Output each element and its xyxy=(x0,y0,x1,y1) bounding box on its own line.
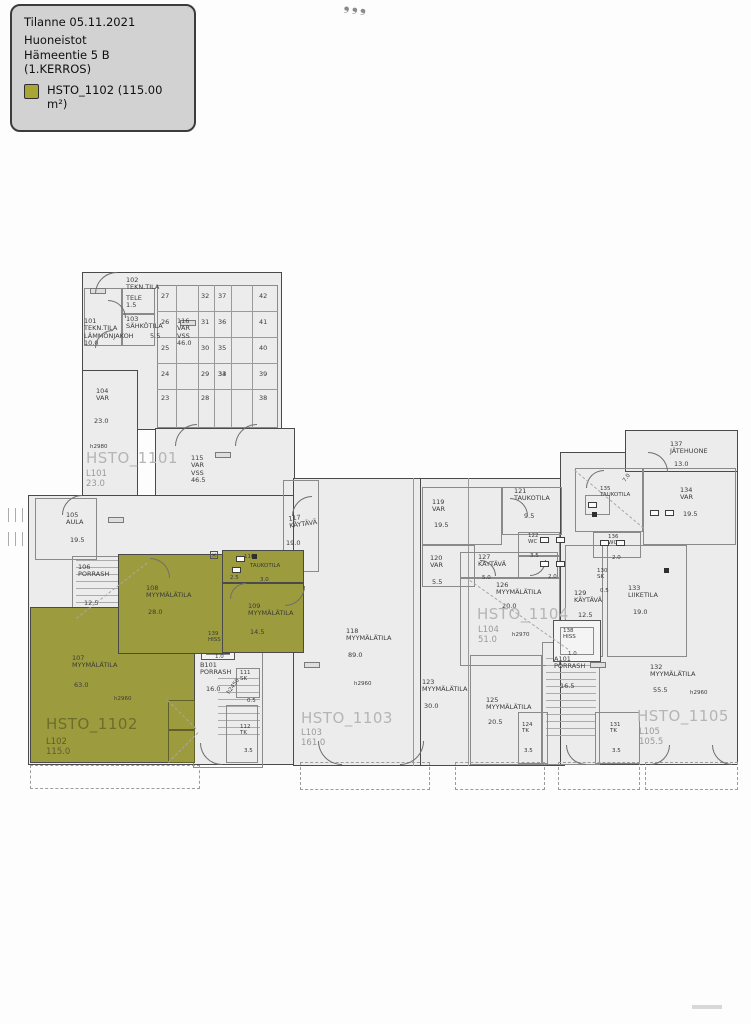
room-label: 1.0 xyxy=(568,651,577,657)
room-label: 115 VAR VSS 46.5 xyxy=(191,455,205,484)
bound-118-123 xyxy=(413,478,414,766)
room-label: 27 xyxy=(161,293,169,300)
room-label: 137 JÄTEHUONE xyxy=(670,441,708,456)
room-label: A101 PORRASH xyxy=(554,656,585,671)
room-label: 116 VAR VSS 46.0 xyxy=(177,318,191,347)
room-label: 31 xyxy=(201,319,209,326)
room-label: TELE 1.5 xyxy=(126,295,142,310)
room-label: 19.0 xyxy=(633,609,647,616)
room-label: 123 MYYMÄLÄTILA xyxy=(422,679,467,694)
canopy xyxy=(300,762,430,790)
ramp-left xyxy=(8,532,28,546)
room-119 xyxy=(422,487,502,545)
gline xyxy=(157,337,278,338)
room-label: 19.5 xyxy=(434,522,448,529)
room-label: 25 xyxy=(161,345,169,352)
room-label: 35 xyxy=(218,345,226,352)
room-134 xyxy=(643,468,736,545)
wc-fixture-icon xyxy=(540,537,549,543)
room-label: 19.5 xyxy=(683,511,697,518)
room-label: 20.5 xyxy=(488,719,502,726)
room-label: 126 MYYMÄLÄTILA xyxy=(496,582,541,597)
room-label: 132 MYYMÄLÄTILA xyxy=(650,664,695,679)
room-label: 125 MYYMÄLÄTILA xyxy=(486,697,531,712)
wc-fixture-icon xyxy=(556,537,565,543)
drain-marker: × xyxy=(210,551,218,559)
room-label: 122 WC xyxy=(528,533,539,545)
room-label: 89.0 xyxy=(348,652,362,659)
room-label: 0.5 xyxy=(600,588,609,594)
room-label: 26 xyxy=(161,319,169,326)
room-label: 124 TK xyxy=(522,722,533,734)
room-label: 39 xyxy=(259,371,267,378)
room-label: 118 MYYMÄLÄTILA xyxy=(346,628,391,643)
room-label: 16.0 xyxy=(206,686,220,693)
gline xyxy=(231,285,232,428)
room-label: 2.5 xyxy=(230,575,239,581)
room-label: B101 PORRASH xyxy=(200,662,231,677)
code-box xyxy=(590,662,606,668)
room-124 xyxy=(518,712,548,764)
room-label: 16.5 xyxy=(560,683,574,690)
room-label: 3.5 xyxy=(612,748,621,754)
corner-watermark xyxy=(692,1005,722,1009)
room-label: 32 xyxy=(201,293,209,300)
fixture-icon xyxy=(252,554,257,559)
room-label: 42 xyxy=(259,293,267,300)
room-label: L102 115.0 xyxy=(46,738,70,757)
room-label: 13.0 xyxy=(674,461,688,468)
room-label: 30 xyxy=(201,345,209,352)
room-label: 19.0 xyxy=(286,540,300,547)
room-label: 1.0 xyxy=(215,654,224,660)
room-label: 133 LIIKETILA xyxy=(628,585,658,600)
room-label: 131 TK xyxy=(610,722,621,734)
room-label: 5.5 xyxy=(432,579,442,586)
room-label: 38 xyxy=(259,395,267,402)
fixture-icon xyxy=(592,512,597,517)
canopy xyxy=(30,765,200,789)
room-label: 37 xyxy=(218,293,226,300)
room-label: 138 HISS xyxy=(563,628,576,640)
unit-label-1104: HSTO_1104 xyxy=(477,606,569,623)
wc-fixture-icon xyxy=(236,556,245,562)
room-label: 120 VAR xyxy=(430,555,443,570)
wc-fixture-icon xyxy=(616,540,625,546)
code-box xyxy=(215,452,231,458)
room-label: 0.5 xyxy=(247,698,256,704)
room-label: 23.0 xyxy=(94,418,108,425)
room-label: h2960 xyxy=(354,681,371,687)
room-label: 104 VAR xyxy=(96,388,109,403)
plan-layer: 102 TEKN.TILATELE 1.5103 SÄHKÖTILA5.5101… xyxy=(0,0,751,1024)
room-label: 3.5 xyxy=(244,748,253,754)
unit-label-1102: HSTO_1102 xyxy=(46,716,138,733)
room-label: 29 xyxy=(201,371,209,378)
wc-fixture-icon xyxy=(665,510,674,516)
room-label: 106 PORRASH xyxy=(78,564,109,579)
room-label: 108 MYYMÄLÄTILA xyxy=(146,585,191,600)
room-label: h2960 xyxy=(690,690,707,696)
room-label: 12.5 xyxy=(578,612,592,619)
room-label: 2.0 xyxy=(548,574,557,580)
room-label: 3.5 xyxy=(530,553,539,559)
wc-fixture-icon xyxy=(650,510,659,516)
unit-label-1103: HSTO_1103 xyxy=(301,710,393,727)
wc-fixture-icon xyxy=(600,540,609,546)
canopy xyxy=(455,762,545,790)
room-label: h2970 xyxy=(512,632,529,638)
room-label: 23 xyxy=(161,395,169,402)
gline xyxy=(157,311,278,312)
room-label: 107 MYYMÄLÄTILA xyxy=(72,655,117,670)
gline xyxy=(252,285,253,428)
gline xyxy=(157,363,278,364)
room-label: 129 KÄYTÄVÄ xyxy=(574,590,602,605)
room-133 xyxy=(607,545,687,657)
room-label: 28 xyxy=(201,395,209,402)
ramp-left xyxy=(8,508,28,522)
room-label: 119 VAR xyxy=(432,499,445,514)
room-label: 40 xyxy=(259,345,267,352)
room-label: 111 SK xyxy=(240,670,251,682)
room-label: 139 HISS xyxy=(208,631,221,643)
room-label: L101 23.0 xyxy=(86,470,107,489)
room-label: 5.5 xyxy=(150,333,160,340)
gline xyxy=(176,285,177,428)
room-label: 63.0 xyxy=(74,682,88,689)
gline xyxy=(157,389,278,390)
code-box xyxy=(304,662,320,668)
unit-label-1101: HSTO_1101 xyxy=(86,450,178,467)
room-label: TAUKOTILA xyxy=(250,563,280,569)
room-label: 30.0 xyxy=(424,703,438,710)
room-label: 112 TK xyxy=(240,724,251,736)
room-label: h2960 xyxy=(114,696,131,702)
room-label: L104 51.0 xyxy=(478,626,499,645)
room-label: 3.0 xyxy=(260,577,269,583)
stairs-a101 xyxy=(546,658,596,742)
room-label: 55.5 xyxy=(653,687,667,694)
gline xyxy=(198,285,199,428)
room-label: 19.5 xyxy=(70,537,84,544)
fixture-icon xyxy=(664,568,669,573)
room-label: 41 xyxy=(259,319,267,326)
room-label: 36 xyxy=(218,319,226,326)
code-box xyxy=(108,517,124,523)
room-label: 102 TEKN.TILA xyxy=(126,277,159,292)
room-label: 134 VAR xyxy=(680,487,693,502)
wc-fixture-icon xyxy=(540,561,549,567)
gline xyxy=(214,285,215,428)
canopy xyxy=(558,762,640,790)
floorplan-viewer: Tilanne 05.11.2021 Huoneistot Hämeentie … xyxy=(0,0,751,1024)
room-label: 130 SK xyxy=(597,568,608,580)
wc-fixture-icon xyxy=(232,567,241,573)
room-label: 14.5 xyxy=(250,629,264,636)
room-label: 28.0 xyxy=(148,609,162,616)
room-131 xyxy=(595,712,640,764)
room-label: 24 xyxy=(161,371,169,378)
canopy xyxy=(645,762,738,790)
unit-label-1105: HSTO_1105 xyxy=(637,708,729,725)
room-label: 33 xyxy=(218,371,226,378)
room-label: 3.5 xyxy=(524,748,533,754)
room-label: 2.0 xyxy=(612,555,621,561)
wc-fixture-icon xyxy=(588,502,597,508)
wc-fixture-icon xyxy=(556,561,565,567)
